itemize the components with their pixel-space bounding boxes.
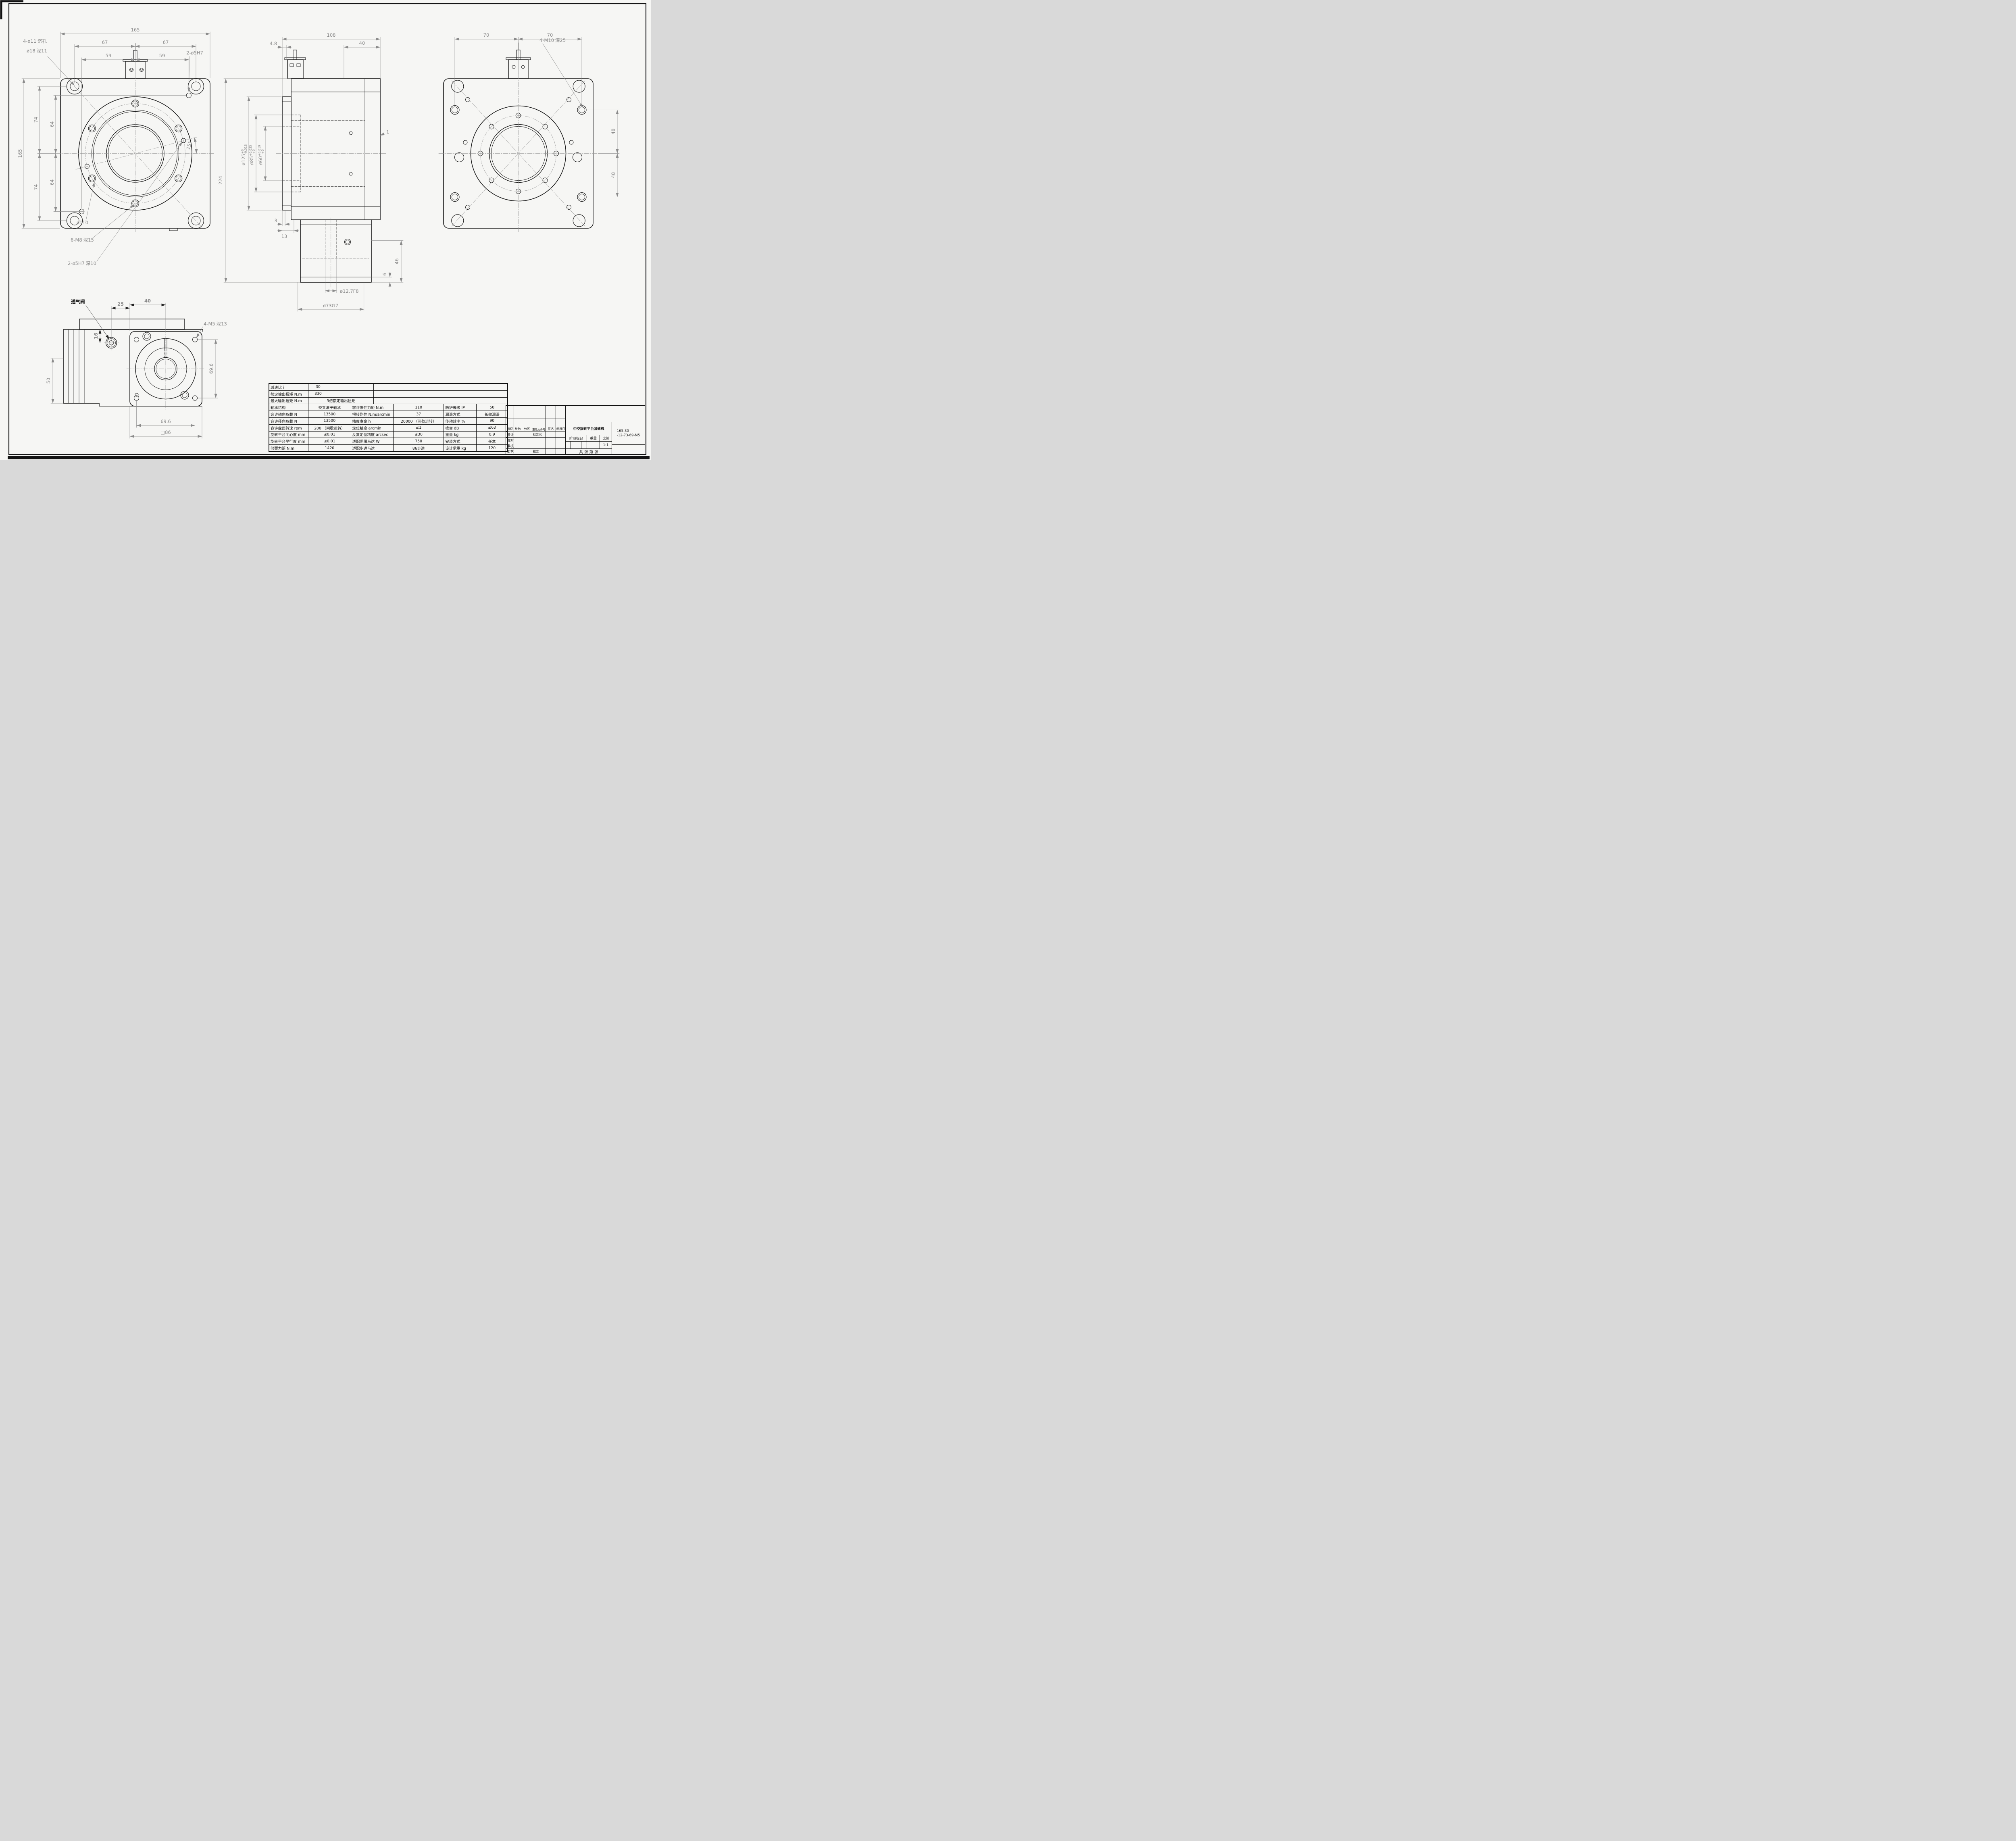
part-number-line2: -12-73-69-M5: [617, 434, 640, 438]
side-view-centerlines: [276, 154, 386, 289]
spec-value: ≤0.01: [308, 438, 351, 445]
rev-empty: [506, 412, 514, 419]
spec-value: 120: [477, 445, 508, 452]
dim-165-top: 165: [131, 27, 140, 33]
spec-label: 额定输出扭矩 N.m: [269, 390, 308, 397]
spec-empty: [374, 397, 508, 404]
stage-label: 阶段标记: [565, 435, 587, 442]
dim-40: 40: [359, 40, 365, 46]
spec-label: 轴承结构: [269, 404, 308, 411]
sig-empty: [556, 437, 566, 443]
label-pin-top: 2-ø5H7: [186, 50, 203, 56]
rev-empty: [556, 419, 566, 426]
sig-audit: 审核: [506, 443, 514, 449]
back-view-texts: 70 70 4-M10深25 48 48: [483, 32, 616, 178]
spec-label: 容许盘面转速 rpm: [269, 424, 308, 431]
sig-empty: [556, 443, 566, 449]
rev-empty: [522, 419, 532, 426]
side-view-dimensions: [224, 37, 403, 311]
spec-label: 倾覆力矩 N.m: [269, 445, 308, 452]
label-counterbore-line2: ø18深11: [27, 48, 47, 54]
weight-label: 重量: [587, 435, 600, 442]
spec-value: 50: [477, 404, 508, 411]
sig-empty: [522, 432, 532, 438]
rev-empty: [556, 412, 566, 419]
rev-empty: [522, 412, 532, 419]
dim-dia85: ø85+0.035+0: [249, 145, 256, 165]
front-view-centerlines: [56, 74, 215, 233]
dim-3: 3: [274, 218, 277, 223]
spec-label: 反复定位精度 arcsec: [351, 431, 393, 438]
front-view-dimensions: [22, 32, 210, 261]
dim-696-vertical: 69.6: [208, 363, 214, 374]
dim-224: 224: [218, 176, 223, 185]
spec-label: 噪音 dB: [444, 424, 477, 431]
spec-value: 330: [308, 390, 328, 397]
spec-label: 防护等级 IP: [444, 404, 477, 411]
spec-empty: [351, 384, 374, 390]
spec-label: 重量 kg: [444, 431, 477, 438]
sig-empty: [522, 437, 532, 443]
rev-empty: [522, 405, 532, 412]
table-row: 最大输出扭矩 N.m 3倍额定输出扭矩: [269, 397, 508, 404]
spec-value: 86步进: [393, 445, 444, 452]
rev-header-count: 处数: [514, 426, 522, 432]
sig-empty: [546, 448, 556, 455]
spec-empty: [374, 384, 508, 390]
dim-48-top: 48: [610, 129, 616, 135]
label-pin-bottom: 2-ø5H7深10: [68, 261, 96, 266]
spec-label: 设计承重 kg: [444, 445, 477, 452]
dim-64-top: 64: [49, 121, 55, 127]
dim-64-bottom: 64: [49, 179, 55, 186]
sig-process: 工艺: [506, 448, 514, 455]
spec-label: 容许惯性力矩 N.m: [351, 404, 393, 411]
sig-empty: [546, 437, 556, 443]
spec-label: 定位精度 arcmin: [351, 424, 393, 431]
label-4m10: 4-M10深25: [539, 38, 566, 43]
rev-empty: [506, 419, 514, 426]
dim-48: 4.8: [270, 41, 277, 46]
dim-46: 46: [394, 259, 400, 265]
spec-value: ≤30: [393, 431, 444, 438]
dim-6: 6: [382, 273, 387, 275]
table-row: 旋转平台平行度 mm ≤0.01 适配伺服马达 W 750 安装方式 任意: [269, 438, 508, 445]
spec-value: ≤0.01: [308, 431, 351, 438]
sig-standardize: 标准化: [532, 432, 546, 438]
sig-empty: [556, 432, 566, 438]
spec-value: 8.9: [477, 431, 508, 438]
label-breather-valve: 透气阀: [71, 299, 85, 304]
sig-empty: [522, 443, 532, 449]
dim-dia125: ø125+0-0.018: [241, 144, 248, 165]
side-view: 108 4.8 40 ø125+0-0.018 ø85+0.035+0 ø60+…: [218, 32, 403, 311]
scale-label: 比例: [600, 435, 612, 442]
spec-label: 容许径向负载 N: [269, 417, 308, 424]
sig-empty: [514, 432, 522, 438]
spec-empty: [351, 390, 374, 397]
part-number-line1: 165-30: [617, 429, 640, 434]
dim-74-bottom: 74: [33, 184, 39, 190]
bottom-view-texts: 透气阀 25 40 16 50 4-M5深13 69.6 69.6 □86: [46, 298, 227, 435]
dim-59-right: 59: [159, 53, 165, 58]
spec-value: 3倍额定输出扭矩: [308, 397, 374, 404]
spec-label: 旋转平台同心度 mm: [269, 431, 308, 438]
spec-value: 13500: [308, 411, 351, 418]
spec-value: 1420: [308, 445, 351, 452]
bottom-view: 透气阀 25 40 16 50 4-M5深13 69.6 69.6 □86: [46, 298, 227, 438]
spec-table: 减速比 i 30 额定输出扭矩 N.m 330 最大输出扭矩 N.m 3倍额定输…: [269, 383, 508, 452]
table-row: 容许径向负载 N 13500 精度寿命 h 20000 （间歇运转） 传动效率 …: [269, 417, 508, 424]
table-row: 容许盘面转速 rpm 200 （间歇运转） 定位精度 arcmin ≤1 噪音 …: [269, 424, 508, 431]
back-view-centerlines: [439, 74, 598, 233]
table-row: 倾覆力矩 N.m 1420 适配步进马达 86步进 设计承重 kg 120: [269, 445, 508, 452]
dim-67-left: 67: [102, 40, 108, 45]
spec-label: 安装方式: [444, 438, 477, 445]
scale-value: 1:1: [600, 441, 612, 449]
rev-header-sign: 签名: [546, 426, 556, 432]
stage-box: [581, 441, 587, 449]
rev-empty: [514, 405, 522, 412]
sig-empty: [546, 443, 556, 449]
rev-header-date: 年月日: [556, 426, 566, 432]
sig-empty: [532, 443, 546, 449]
spec-value: 110: [393, 404, 444, 411]
sig-empty: [514, 437, 522, 443]
sig-design: 设计: [506, 432, 514, 438]
dim-square86: □86: [160, 429, 171, 435]
rev-empty: [514, 419, 522, 426]
side-view-hidden-lines: [282, 115, 369, 258]
dim-59-left: 59: [106, 53, 112, 58]
part-number: 165-30-12-73-69-M5: [612, 422, 645, 445]
rev-empty: [546, 412, 556, 419]
tb-empty-top: [565, 405, 645, 422]
spec-value: 750: [393, 438, 444, 445]
table-row: 轴承结构 交叉滚子轴承 容许惯性力矩 N.m 110 防护等级 IP 50: [269, 404, 508, 411]
spec-value: 长效润滑: [477, 411, 508, 418]
spec-value: 13500: [308, 417, 351, 424]
spec-empty: [374, 390, 508, 397]
spec-label: 润滑方式: [444, 411, 477, 418]
dim-dia73: ø73G7: [323, 303, 338, 309]
spec-value: 37: [393, 411, 444, 418]
dim-40: 40: [144, 298, 151, 304]
back-view: 70 70 4-M10深25 48 48: [439, 32, 619, 233]
drawing-title: 中空旋转平台减速机: [565, 422, 612, 435]
spec-value: 200 （间歇运转）: [308, 424, 351, 431]
rev-empty: [506, 405, 514, 412]
table-row: 额定输出扭矩 N.m 330: [269, 390, 508, 397]
spec-value: 30: [308, 384, 328, 390]
spec-label: 最大输出扭矩 N.m: [269, 397, 308, 404]
drawing-sheet: 165 67 67 59 59 165 74 64 64 74 15° 4-ø1…: [0, 0, 651, 460]
sig-empty: [522, 448, 532, 455]
spec-label: 适配伺服马达 W: [351, 438, 393, 445]
sig-empty: [532, 437, 546, 443]
rev-header-docno: 更改文件号: [532, 426, 546, 432]
front-view: 165 67 67 59 59 165 74 64 64 74 15° 4-ø1…: [17, 27, 215, 266]
spec-empty: [328, 390, 351, 397]
front-view-texts: 165 67 67 59 59 165 74 64 64 74 15° 4-ø1…: [17, 27, 203, 266]
table-row: 容许轴向负载 N 13500 扭转刚性 N.m/arcmin 37 润滑方式 长…: [269, 411, 508, 418]
sig-empty: [514, 448, 522, 455]
rev-header-zone: 分区: [522, 426, 532, 432]
dim-70-left: 70: [483, 32, 489, 38]
dim-13: 13: [281, 234, 287, 239]
stage-box: [571, 441, 576, 449]
rev-empty: [532, 412, 546, 419]
spec-label: 扭转刚性 N.m/arcmin: [351, 411, 393, 418]
label-6m8: 6-M8深15: [71, 237, 94, 243]
spec-value: 交叉滚子轴承: [308, 404, 351, 411]
spec-value: ≤1: [393, 424, 444, 431]
rev-header-mark: 标记: [506, 426, 514, 432]
label-dia110: ø110: [77, 220, 88, 225]
dim-48-bottom: 48: [610, 172, 616, 178]
label-4m5: 4-M5深13: [204, 321, 227, 327]
rev-empty: [514, 412, 522, 419]
stage-box: [565, 441, 571, 449]
spec-label: 旋转平台平行度 mm: [269, 438, 308, 445]
spec-value: 90: [477, 417, 508, 424]
rev-empty: [546, 405, 556, 412]
spec-value: 任意: [477, 438, 508, 445]
rev-empty: [556, 405, 566, 412]
label-counterbore-line1: 4-ø11沉孔: [23, 38, 47, 44]
spec-value: 20000 （间歇运转）: [393, 417, 444, 424]
dim-dia127: ø12.7F8: [340, 288, 359, 294]
stage-box: [576, 441, 581, 449]
title-block: 标记 处数 分区 更改文件号 签名 年月日 设计 标准化 校对 审核 工艺 批准…: [506, 405, 645, 455]
sig-empty: [514, 443, 522, 449]
dim-67-right: 67: [163, 40, 169, 45]
dim-70-right: 70: [547, 32, 553, 38]
dim-696-horizontal: 69.6: [160, 419, 171, 424]
sheet-count: 共 张 第 张: [565, 448, 612, 455]
spec-label: 适配步进马达: [351, 445, 393, 452]
rev-empty: [532, 405, 546, 412]
weight-value: [587, 441, 600, 449]
side-view-linework: [282, 43, 380, 282]
tb-empty-bottom: [612, 444, 645, 455]
spec-label: 精度寿命 h: [351, 417, 393, 424]
sig-approve: 批准: [532, 448, 546, 455]
dim-165-left: 165: [17, 149, 23, 158]
spec-label: 减速比 i: [269, 384, 308, 390]
spec-empty: [328, 384, 351, 390]
dim-dia60: ø60+0.019+0: [258, 145, 264, 165]
sig-check: 校对: [506, 437, 514, 443]
table-row: 减速比 i 30: [269, 384, 508, 390]
dim-16: 16: [93, 333, 99, 339]
sig-empty: [556, 448, 566, 455]
side-view-texts: 108 4.8 40 ø125+0-0.018 ø85+0.035+0 ø60+…: [218, 32, 400, 309]
bottom-view-dimensions: [51, 303, 218, 438]
sig-empty: [546, 432, 556, 438]
spec-value: ≤63: [477, 424, 508, 431]
spec-label: 传动效率 %: [444, 417, 477, 424]
dim-50: 50: [46, 378, 51, 384]
rev-empty: [546, 419, 556, 426]
dim-25: 25: [117, 301, 124, 307]
table-row: 旋转平台同心度 mm ≤0.01 反复定位精度 arcsec ≤30 重量 kg…: [269, 431, 508, 438]
dim-74-top: 74: [33, 117, 39, 123]
spec-label: 容许轴向负载 N: [269, 411, 308, 418]
bottom-view-linework: [63, 319, 203, 406]
dim-1: 1: [386, 129, 389, 135]
dim-108: 108: [327, 32, 336, 38]
rev-empty: [532, 419, 546, 426]
